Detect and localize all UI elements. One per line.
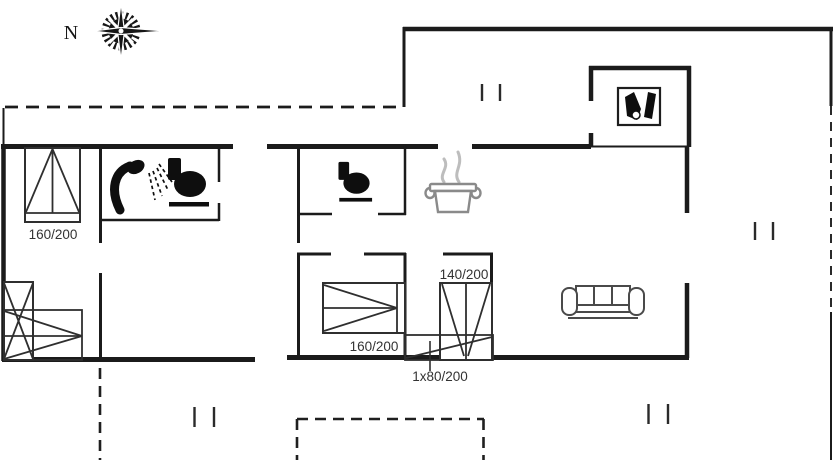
compass-rose-icon	[93, 3, 166, 60]
outer-walls	[2, 27, 833, 460]
floor-plan: N	[0, 0, 834, 460]
toilet-icon	[338, 162, 372, 202]
corner-bed-icon	[4, 282, 82, 360]
bed-dimension-label: 160/200	[350, 339, 399, 354]
vent-mark	[195, 407, 215, 427]
bed-dimension-label: 1x80/200	[412, 369, 468, 384]
interior-walls	[101, 146, 494, 360]
floor-plan-drawing: N	[0, 0, 834, 460]
terrace-dashed-lines	[5, 106, 831, 460]
wood-stove-icon	[618, 88, 660, 125]
sofa-icon	[562, 286, 644, 318]
double-bed-icon	[25, 148, 80, 222]
bed-dimension-label: 140/200	[440, 267, 489, 282]
double-bed-icon	[323, 283, 405, 333]
bed-dimension-label: 160/200	[29, 227, 78, 242]
compass-north-label: N	[64, 22, 78, 44]
shower-icon	[115, 157, 172, 210]
vent-mark	[482, 84, 500, 101]
toilet-icon	[168, 158, 209, 207]
vent-mark	[755, 222, 773, 240]
cooking-pot-icon	[426, 152, 481, 212]
vent-mark	[649, 404, 669, 424]
